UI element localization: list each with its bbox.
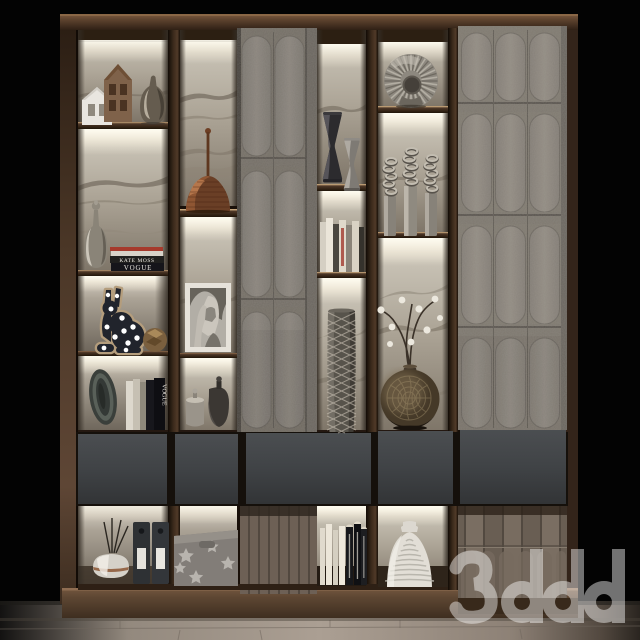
svg-text:VOGUE: VOGUE: [161, 384, 168, 406]
svg-text:VOGUE: VOGUE: [124, 264, 153, 272]
